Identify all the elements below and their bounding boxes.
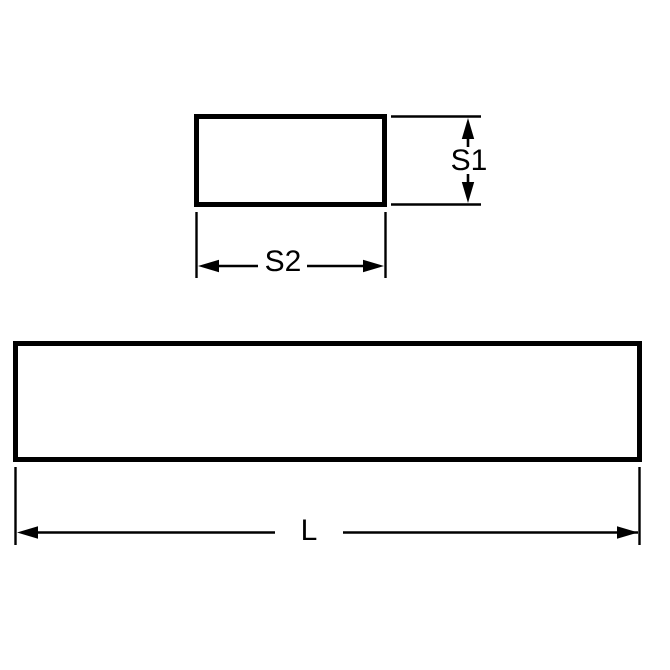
s2-dimension: S2 bbox=[197, 212, 386, 278]
bar-rectangle bbox=[16, 344, 640, 460]
cross-section-rectangle bbox=[197, 117, 385, 205]
arrow-up-icon bbox=[462, 118, 474, 139]
keystock-technical-drawing: S1 S2 L bbox=[0, 0, 670, 670]
cross-section-view bbox=[197, 117, 385, 205]
s2-dimension-label: S2 bbox=[265, 245, 302, 278]
length-dimension: L bbox=[16, 467, 640, 547]
s1-dimension-label: S1 bbox=[451, 144, 488, 177]
arrow-left-icon bbox=[17, 526, 38, 538]
arrow-down-icon bbox=[462, 182, 474, 203]
drawing-svg: S1 S2 L bbox=[0, 0, 670, 670]
s1-dimension: S1 bbox=[391, 117, 487, 205]
arrow-right-icon bbox=[617, 526, 638, 538]
side-view bbox=[16, 344, 640, 460]
arrow-left-icon bbox=[198, 260, 219, 272]
arrow-right-icon bbox=[363, 260, 384, 272]
length-dimension-label: L bbox=[301, 514, 318, 547]
